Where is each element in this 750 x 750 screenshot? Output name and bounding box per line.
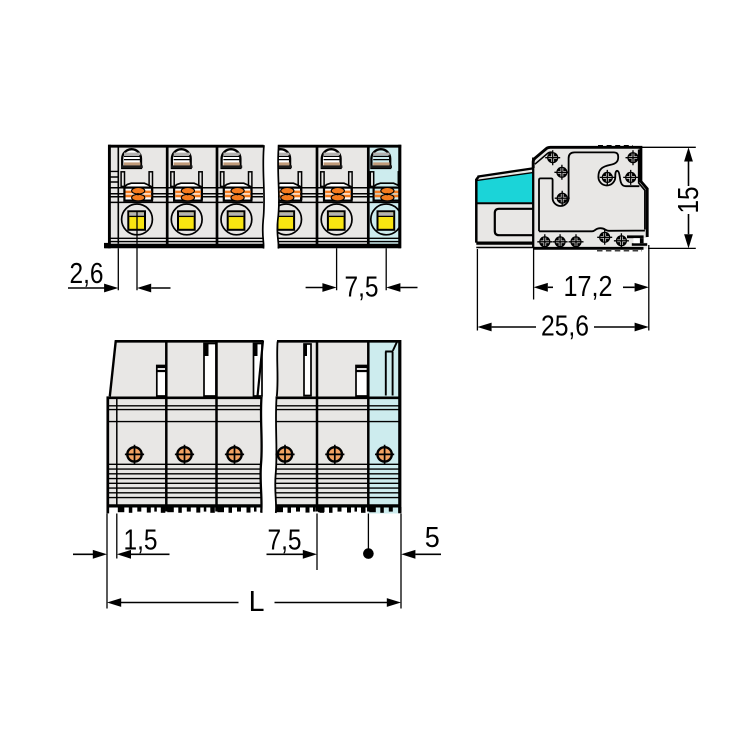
svg-text:7,5: 7,5 xyxy=(268,525,302,557)
svg-text:15: 15 xyxy=(673,187,705,214)
svg-text:7,5: 7,5 xyxy=(345,272,379,304)
svg-text:1,5: 1,5 xyxy=(124,525,158,557)
svg-text:L: L xyxy=(249,586,265,618)
svg-text:17,2: 17,2 xyxy=(564,271,613,303)
svg-text:2,6: 2,6 xyxy=(70,258,104,290)
svg-text:25,6: 25,6 xyxy=(541,311,589,343)
svg-text:5: 5 xyxy=(425,522,440,554)
